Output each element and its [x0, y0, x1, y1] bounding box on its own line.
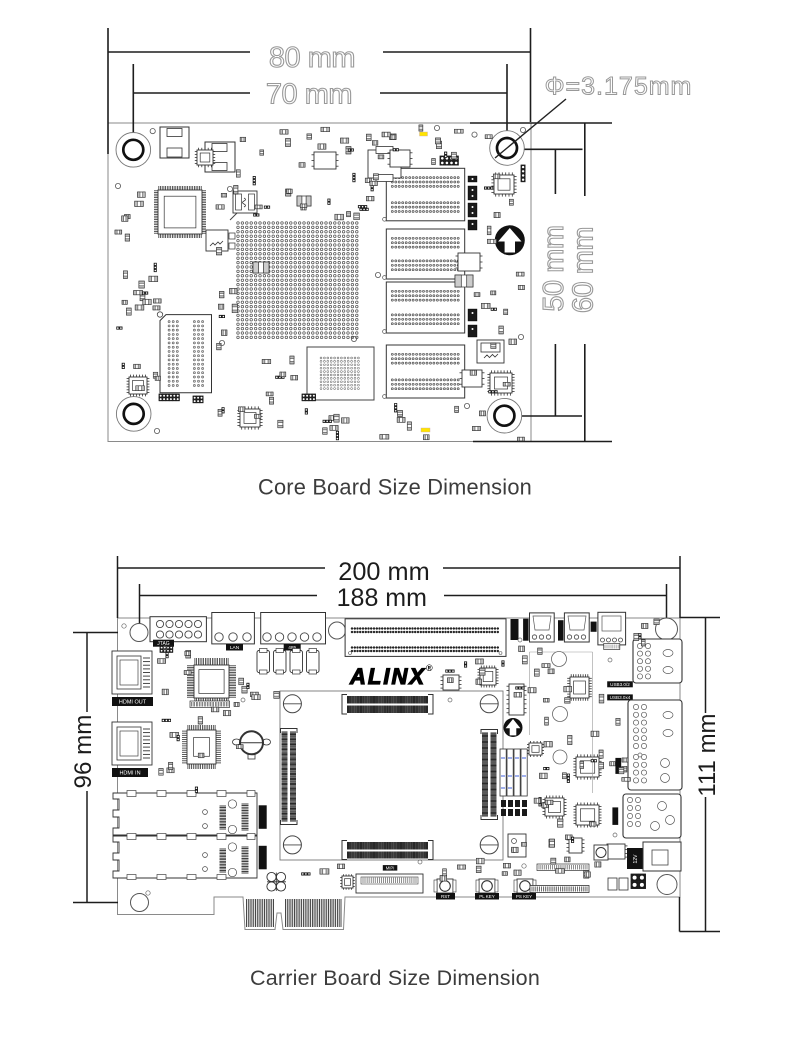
svg-text:ALINX: ALINX	[349, 664, 426, 689]
svg-text:96 mm: 96 mm	[70, 715, 97, 789]
svg-text:60 mm: 60 mm	[568, 227, 600, 313]
svg-text:200 mm: 200 mm	[338, 558, 429, 586]
svg-text:HDMI OUT: HDMI OUT	[119, 699, 147, 705]
svg-text:LAN: LAN	[230, 645, 240, 651]
svg-text:50 mm: 50 mm	[538, 225, 570, 311]
svg-text:USB3.0x4: USB3.0x4	[610, 695, 631, 700]
svg-text:PS KEY: PS KEY	[516, 894, 532, 899]
svg-text:111 mm: 111 mm	[694, 713, 721, 796]
svg-text:®: ®	[426, 663, 433, 673]
svg-text:MIPI: MIPI	[386, 865, 395, 870]
svg-text:HDMI IN: HDMI IN	[119, 770, 140, 776]
svg-text:80 mm: 80 mm	[269, 42, 355, 74]
svg-text:188 mm: 188 mm	[337, 584, 427, 612]
svg-text:70 mm: 70 mm	[266, 79, 352, 111]
svg-text:RST: RST	[441, 894, 450, 899]
svg-text:Φ=3.175mm: Φ=3.175mm	[545, 73, 693, 101]
svg-text:PL KEY: PL KEY	[479, 894, 495, 899]
svg-text:USB3.0/2: USB3.0/2	[610, 682, 630, 687]
svg-text:Carrier Board Size Dimension: Carrier Board Size Dimension	[250, 966, 540, 990]
svg-text:Core Board Size Dimension: Core Board Size Dimension	[258, 475, 532, 500]
svg-text:12V: 12V	[633, 854, 639, 864]
